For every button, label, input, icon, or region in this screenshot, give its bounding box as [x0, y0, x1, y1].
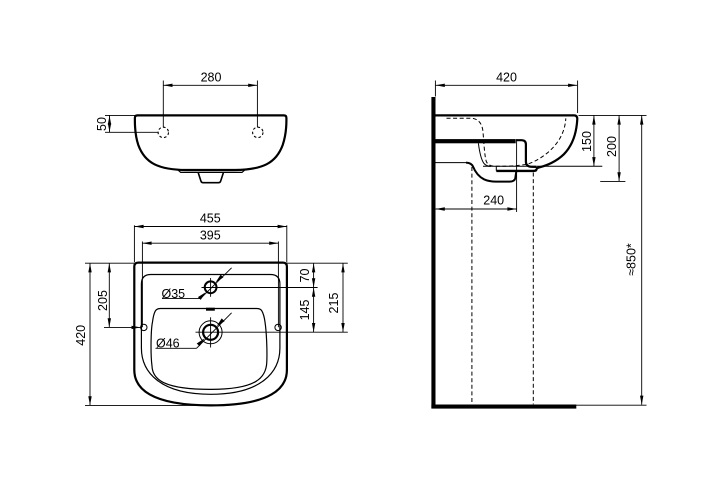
svg-text:205: 205 [96, 290, 110, 311]
svg-text:280: 280 [201, 71, 222, 85]
svg-text:150: 150 [580, 131, 594, 152]
svg-text:420: 420 [74, 325, 88, 346]
svg-text:200: 200 [605, 136, 619, 157]
svg-text:240: 240 [483, 194, 504, 208]
svg-text:420: 420 [496, 71, 517, 85]
svg-text:Ø35: Ø35 [162, 287, 186, 301]
svg-text:50: 50 [95, 117, 109, 131]
svg-text:395: 395 [200, 228, 221, 242]
svg-text:70: 70 [298, 269, 312, 283]
svg-text:455: 455 [200, 211, 221, 225]
svg-text:145: 145 [298, 300, 312, 321]
svg-text:Ø46: Ø46 [156, 336, 180, 350]
svg-text:≈850*: ≈850* [625, 243, 639, 276]
svg-text:215: 215 [327, 293, 341, 314]
